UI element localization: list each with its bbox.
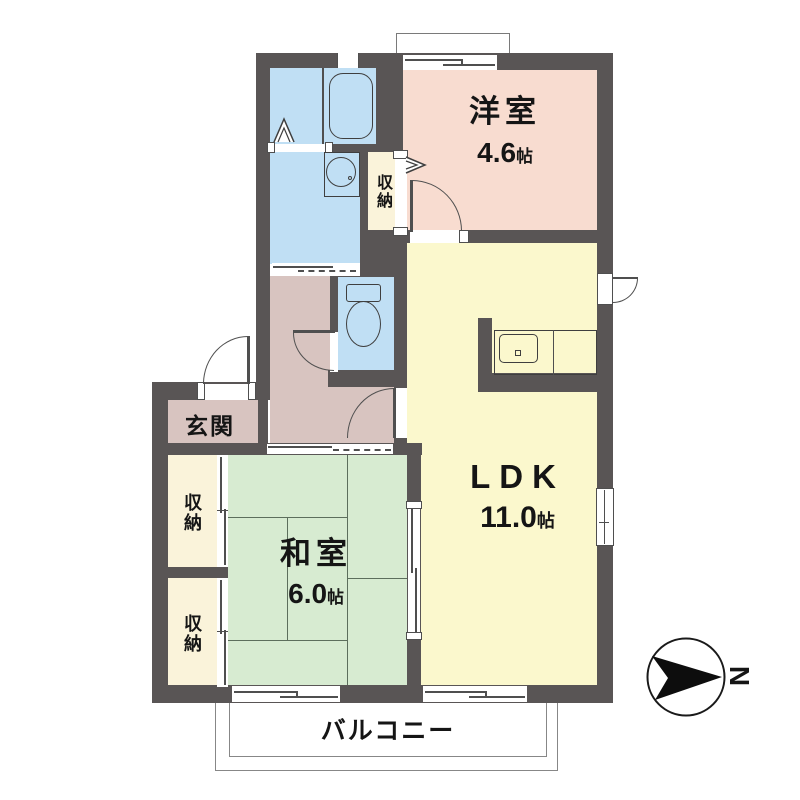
sliding-line — [415, 568, 417, 632]
wall — [360, 152, 368, 232]
wall — [376, 53, 403, 152]
room-area: 4.6帖 — [410, 137, 600, 169]
window-line — [405, 59, 463, 61]
toilet-tank — [346, 284, 381, 302]
sliding-door-japanese-ldk — [408, 508, 420, 633]
wall — [256, 68, 270, 400]
folding-door-icon — [272, 116, 296, 143]
door-post — [406, 501, 422, 509]
sliding-line — [220, 580, 222, 634]
compass-arrow — [652, 656, 722, 700]
label-storage-west: 収納 — [370, 166, 394, 218]
sliding-tick — [217, 631, 228, 632]
tatami-line — [228, 640, 347, 641]
window-western — [403, 55, 497, 70]
wall — [256, 53, 390, 68]
sliding-line — [469, 696, 525, 698]
bathtub — [329, 73, 373, 139]
window-ldk-balcony — [423, 686, 527, 702]
toilet-bowl — [346, 301, 381, 347]
sliding-line — [268, 446, 332, 448]
sliding-tick — [217, 510, 228, 511]
wall — [330, 277, 338, 332]
kitchen-sink — [499, 334, 538, 363]
compass — [645, 636, 729, 720]
wall-kitchen — [478, 373, 597, 392]
room-name: LDK — [425, 458, 610, 496]
label-entrance: 玄関 — [165, 407, 255, 441]
window-line — [443, 64, 495, 66]
window-japanese-balcony — [232, 686, 340, 702]
floor-plan: 洋室 4.6帖 LDK 11.0帖 和室 6.0帖 玄関 収納 収納 収納 バル… — [0, 0, 800, 800]
kitchen-counter-divider — [553, 330, 554, 375]
room-name: 和室 — [226, 528, 406, 573]
room-area: 11.0帖 — [425, 501, 610, 535]
door-arc-service — [613, 278, 638, 303]
sliding-line — [234, 691, 298, 693]
room-area: 6.0帖 — [226, 578, 406, 610]
wall — [258, 400, 268, 443]
sliding-line-dashed — [333, 449, 391, 451]
kitchen-sink-drain — [515, 350, 521, 356]
label-balcony: バルコニー — [288, 711, 488, 747]
door-post — [393, 227, 408, 236]
sliding-line — [224, 630, 226, 685]
door-opening-bathroom — [272, 144, 330, 152]
sliding-door-japanese — [267, 444, 393, 454]
compass-north-label: N — [723, 659, 755, 693]
door-arc-entrance — [203, 336, 248, 384]
label-storage-2: 収納 — [181, 607, 205, 661]
sliding-line — [425, 691, 487, 693]
sliding-line — [411, 509, 413, 573]
label-japanese-room: 和室 6.0帖 — [226, 528, 406, 610]
wall — [168, 567, 228, 578]
label-storage-1: 収納 — [181, 486, 205, 540]
sliding-door-washroom — [272, 263, 360, 276]
door-post — [406, 632, 422, 640]
sliding-line — [280, 696, 338, 698]
window-bathroom — [337, 53, 359, 68]
label-ldk: LDK 11.0帖 — [425, 458, 610, 535]
door-post — [459, 230, 469, 243]
sliding-line-dashed — [298, 270, 356, 272]
sliding-line — [273, 266, 333, 268]
door-opening-entrance — [203, 384, 250, 400]
label-western-room: 洋室 4.6帖 — [410, 86, 600, 169]
wall — [152, 685, 613, 703]
door-post — [197, 382, 205, 400]
room-name: 洋室 — [410, 86, 600, 131]
washbasin-drain — [348, 176, 352, 180]
door-post — [248, 382, 256, 400]
sliding-line — [220, 457, 222, 513]
door-opening-service — [597, 273, 613, 305]
bath-partition — [322, 68, 324, 144]
washbasin — [326, 157, 356, 187]
door-post — [267, 142, 275, 153]
